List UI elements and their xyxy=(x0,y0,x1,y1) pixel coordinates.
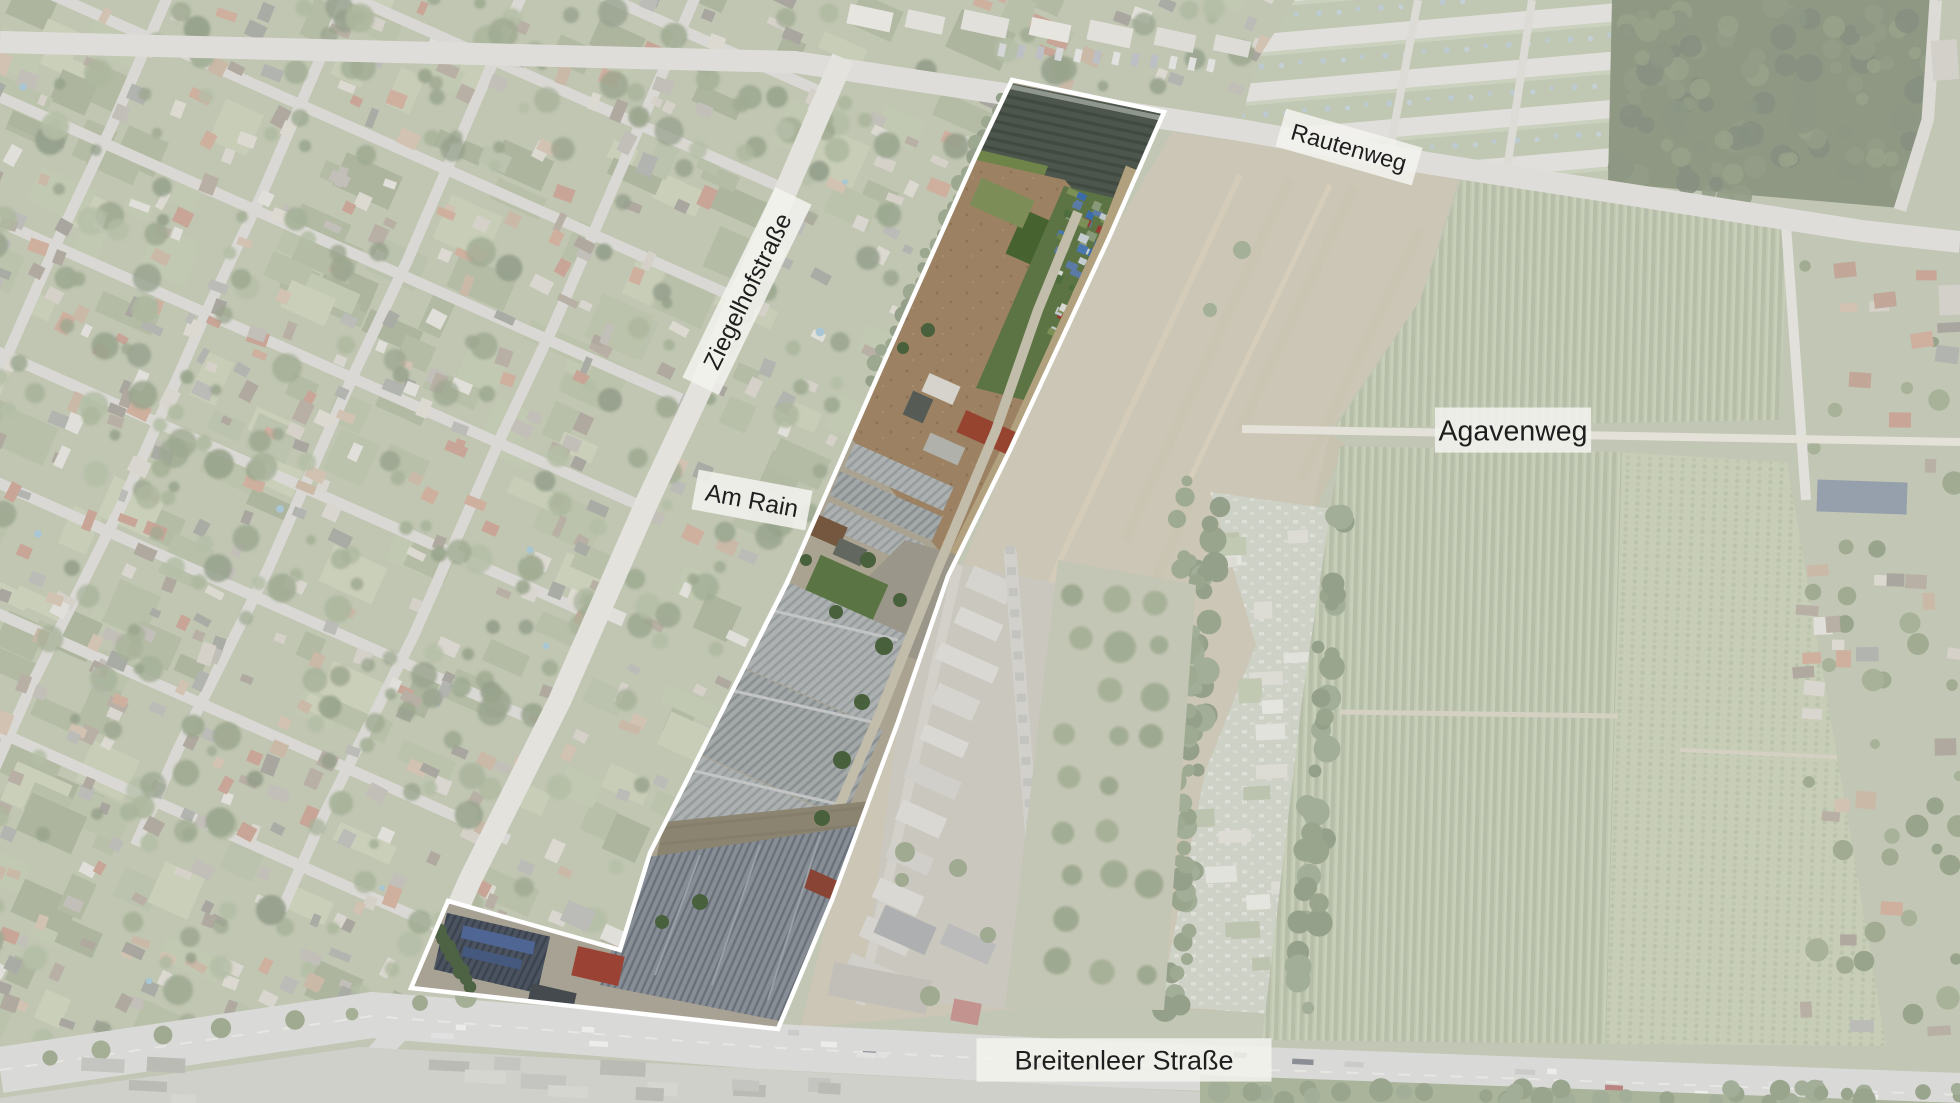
svg-text:Breitenleer Straße: Breitenleer Straße xyxy=(1014,1046,1233,1076)
svg-text:Agavenweg: Agavenweg xyxy=(1439,415,1588,447)
